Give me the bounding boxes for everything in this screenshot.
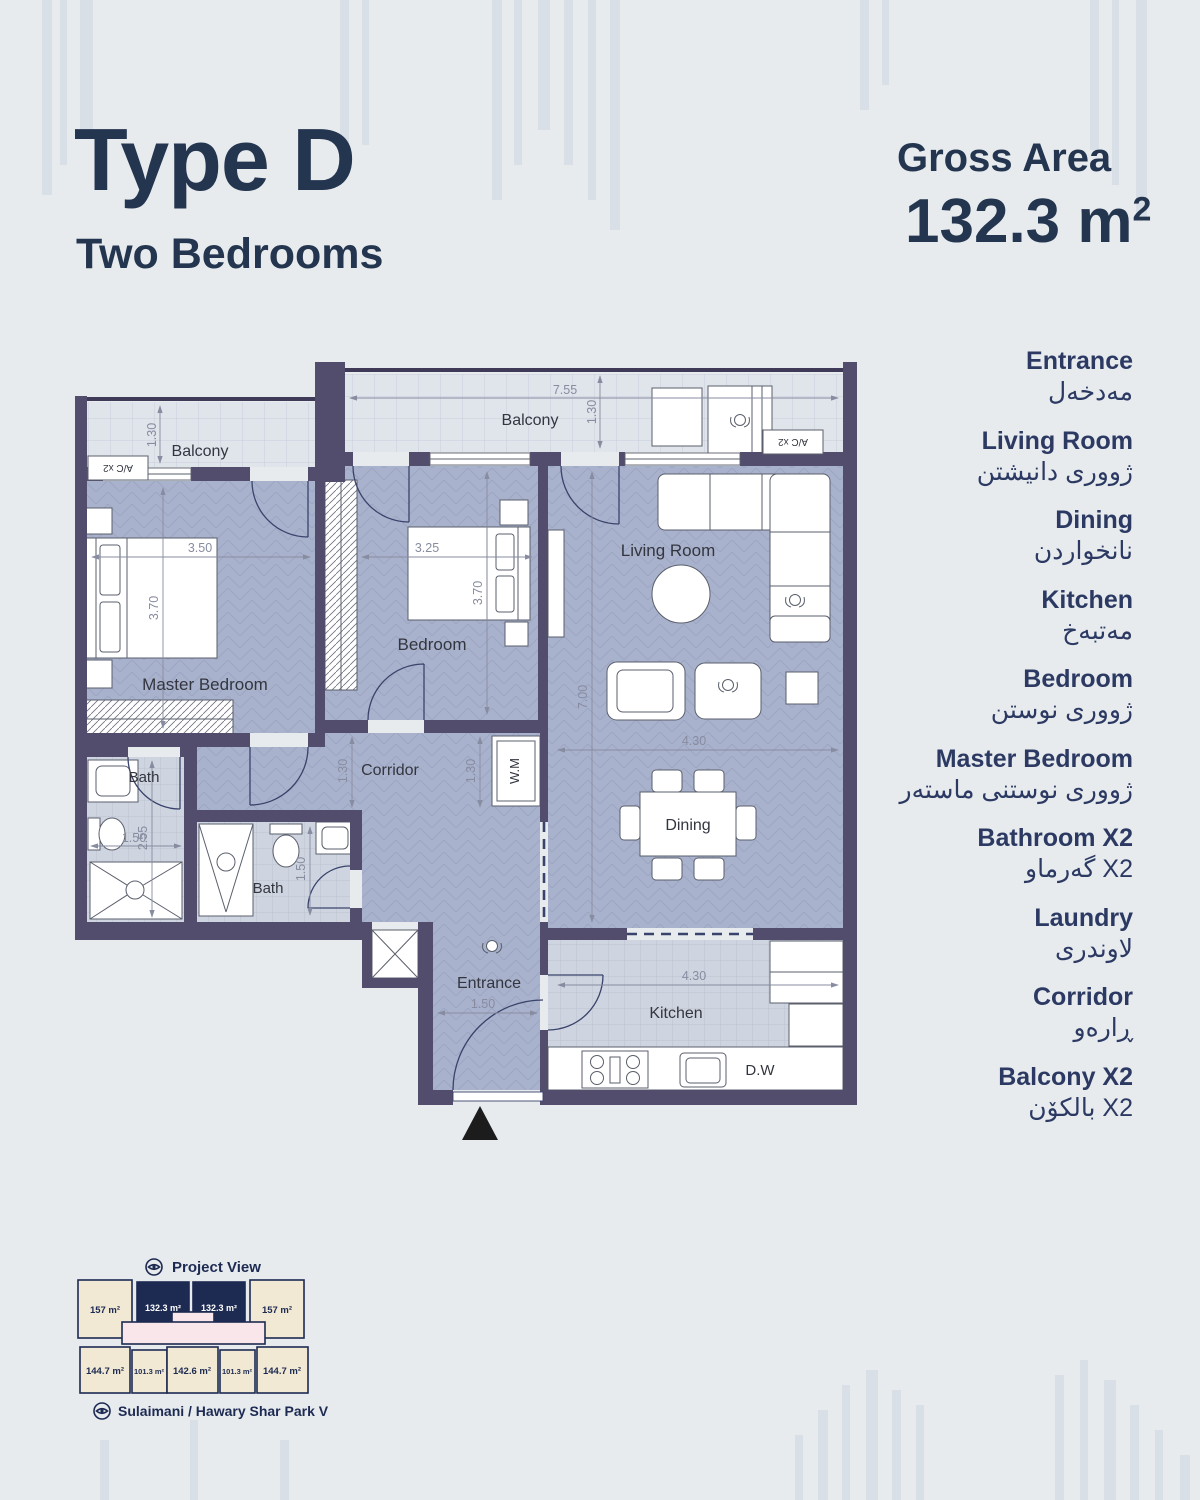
dim-corridor-2: 1.30 xyxy=(464,759,478,783)
label-bath-2: Bath xyxy=(253,880,284,897)
unit-1447-right: 144.7 m² xyxy=(263,1366,301,1377)
unit-157-left: 157 m² xyxy=(90,1305,120,1316)
floorplan-poster: { "page": { "title": "Type D", "subtitle… xyxy=(0,0,1200,1500)
dim-living-width: 4.30 xyxy=(682,734,706,748)
label-ac-right: A/C x2 xyxy=(778,436,808,447)
gross-area-label: Gross Area xyxy=(897,136,1111,181)
page-title: Type D xyxy=(74,116,355,204)
dim-balcony-width: 7.55 xyxy=(553,383,577,397)
dim-bedroom-height: 3.70 xyxy=(471,581,485,605)
entrance-arrow xyxy=(462,1106,498,1140)
park-view-row: Sulaimani / Hawary Shar Park View xyxy=(94,1403,328,1419)
dim-balcony-left-depth: 1.30 xyxy=(145,423,159,447)
dim-living-height: 7.00 xyxy=(576,685,590,709)
dim-corridor-1: 1.30 xyxy=(336,759,350,783)
unit-157-right: 157 m² xyxy=(262,1305,292,1316)
gross-area-value: 132.3 m2 xyxy=(905,186,1151,257)
project-view-label: Project View xyxy=(172,1259,261,1276)
label-bedroom: Bedroom xyxy=(398,635,467,654)
dim-bath2-height: 1.50 xyxy=(294,857,308,881)
label-entrance: Entrance xyxy=(457,975,521,992)
entrance-door-leaf xyxy=(453,1092,543,1101)
dim-entrance-width: 1.50 xyxy=(471,997,495,1011)
park-view-label: Sulaimani / Hawary Shar Park View xyxy=(118,1403,328,1419)
building-key-plan: Project View 157 m² 132.3 m² 132.3 m² 15… xyxy=(58,1248,328,1433)
master-wardrobe xyxy=(85,700,233,738)
unit-132-left: 132.3 m² xyxy=(145,1303,181,1313)
label-washing-machine: W.M xyxy=(507,758,522,784)
unit-1447-left: 144.7 m² xyxy=(86,1366,124,1377)
label-kitchen: Kitchen xyxy=(649,1005,702,1022)
duct-shaft xyxy=(372,930,418,978)
label-master-bedroom: Master Bedroom xyxy=(142,675,268,694)
gross-area-number: 132.3 m xyxy=(905,187,1133,256)
page-subtitle: Two Bedrooms xyxy=(76,230,383,279)
eye-icon xyxy=(94,1403,110,1419)
bedroom-balcony-window xyxy=(430,453,530,465)
unit-1013-left: 101.3 m² xyxy=(134,1367,165,1376)
label-dining: Dining xyxy=(665,817,710,834)
eye-icon xyxy=(146,1259,162,1275)
project-view-row: Project View xyxy=(146,1259,261,1276)
label-ac-left: A/C x2 xyxy=(103,462,133,473)
living-coffee-table xyxy=(652,565,710,623)
label-living-room: Living Room xyxy=(621,541,716,560)
bedroom-wardrobe xyxy=(325,480,357,690)
dim-master-height: 3.70 xyxy=(147,596,161,620)
dim-master-width: 3.50 xyxy=(188,541,212,555)
label-dishwasher: D.W xyxy=(745,1062,775,1079)
unit-1426: 142.6 m² xyxy=(173,1366,211,1377)
dim-bedroom-width: 3.25 xyxy=(415,541,439,555)
unit-1013-right: 101.3 m² xyxy=(222,1367,253,1376)
dim-bath1-height: 2.55 xyxy=(136,826,150,850)
living-balcony-window xyxy=(625,453,740,465)
dim-kitchen-width: 4.30 xyxy=(682,969,706,983)
label-balcony-top: Balcony xyxy=(502,412,559,429)
gross-area-sup: 2 xyxy=(1133,190,1152,228)
floor-plan: 7.55 1.30 1.30 3.50 3.70 3.25 3.70 7.00 … xyxy=(70,360,870,1155)
label-balcony-left: Balcony xyxy=(172,443,229,460)
tv-console xyxy=(548,530,564,637)
label-bath-1: Bath xyxy=(129,769,160,786)
balcony-lounge xyxy=(652,386,772,454)
unit-132-right: 132.3 m² xyxy=(201,1303,237,1313)
dim-balcony-depth: 1.30 xyxy=(585,400,599,424)
label-corridor: Corridor xyxy=(361,762,419,779)
